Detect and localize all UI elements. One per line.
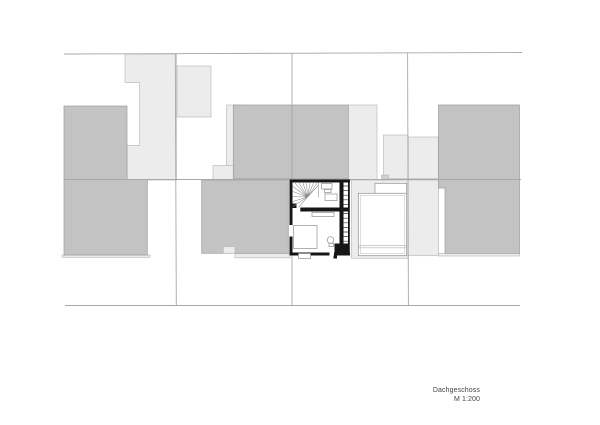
subject-floor-plan bbox=[290, 180, 351, 259]
eave-band-mid bbox=[235, 253, 290, 257]
building-light-small-rect-2 bbox=[408, 137, 438, 179]
wall-corner-mass bbox=[335, 244, 350, 254]
building-light-small-rect-1 bbox=[384, 135, 409, 179]
storey-label: Dachgeschoss bbox=[0, 387, 480, 396]
desk-upper bbox=[322, 184, 333, 190]
site-plan-drawing bbox=[0, 0, 600, 425]
building-light-t-shape bbox=[125, 54, 177, 180]
bed bbox=[294, 226, 318, 249]
building-light-tab-mid bbox=[213, 166, 233, 181]
title-block: Dachgeschoss M 1:200 bbox=[0, 387, 480, 404]
scale-label: M 1:200 bbox=[0, 396, 480, 405]
dormer-step bbox=[299, 254, 311, 259]
boundary-line-vertical-right bbox=[408, 53, 409, 306]
chimney-stub bbox=[334, 256, 338, 259]
building-light-square bbox=[177, 66, 211, 117]
neighbor-roof-terrace bbox=[358, 183, 406, 255]
roof-middle-lower bbox=[202, 180, 289, 253]
wall-top bbox=[290, 180, 351, 183]
roof-left-lower bbox=[64, 180, 147, 256]
terrace-room bbox=[358, 193, 406, 255]
boundary-line-top bbox=[64, 53, 522, 55]
building-light-strip-right-of-mid bbox=[348, 105, 377, 180]
roof-left-upper bbox=[64, 106, 127, 180]
table-upper bbox=[325, 194, 337, 201]
sideboard bbox=[312, 213, 334, 217]
roof-middle-upper bbox=[233, 105, 348, 179]
site-plan-sheet: Dachgeschoss M 1:200 bbox=[0, 0, 600, 425]
roof-middle-lower-notch bbox=[223, 247, 235, 254]
eave-band-right bbox=[439, 253, 520, 256]
basin bbox=[327, 237, 334, 244]
door-jamb bbox=[290, 204, 297, 209]
building-light-base-right-of-line bbox=[408, 180, 439, 256]
basin-pedestal bbox=[329, 243, 334, 246]
terrace-notch bbox=[375, 183, 407, 193]
wall-right-outer bbox=[348, 183, 350, 244]
wall-right-inner bbox=[340, 183, 344, 244]
wall-divider bbox=[300, 208, 348, 212]
desk-upper-small bbox=[325, 190, 332, 193]
